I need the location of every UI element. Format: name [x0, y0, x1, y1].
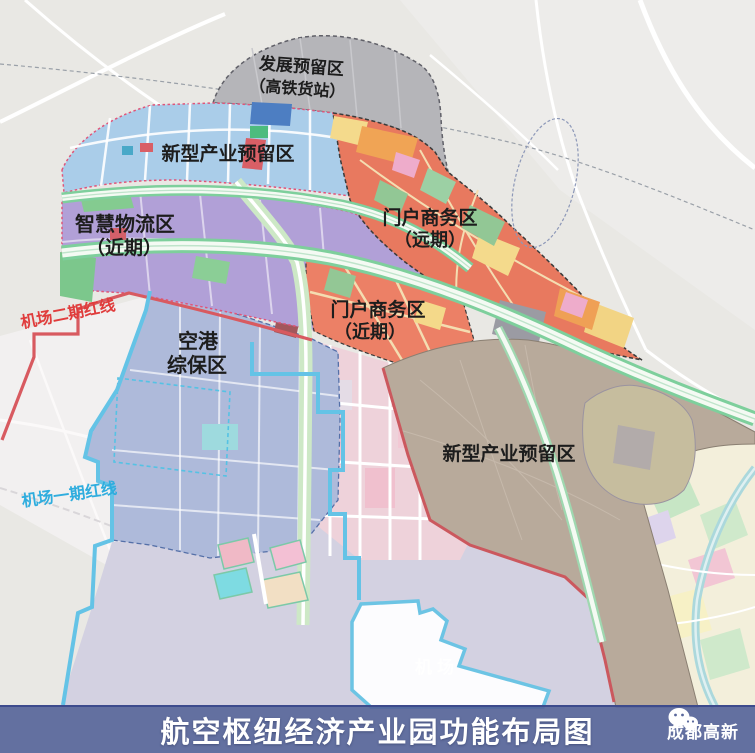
label-gateway-near-sub: （近期） [334, 321, 406, 342]
airport-watermark: 机场 [415, 657, 459, 677]
label-airport-bonded: 空港 [178, 329, 219, 353]
label-smart-logistics: 智慧物流区 [75, 212, 175, 236]
planning-map: 机场 发展预留区 （高铁货站） 新型产业预留区 智慧物流区 （近期） 门户商务区… [0, 0, 755, 753]
label-new-industry-south: 新型产业预留区 [442, 442, 575, 465]
banner: 航空枢纽经济产业园功能布局图 成都高新 [0, 705, 755, 753]
label-airport-bonded-sub: 综保区 [167, 353, 227, 377]
banner-title: 航空枢纽经济产业园功能布局图 [160, 709, 594, 751]
label-new-industry-north: 新型产业预留区 [161, 142, 294, 165]
label-gateway-far-sub: （远期） [394, 230, 466, 250]
label-smart-logistics-sub: （近期） [86, 236, 162, 259]
wechat-icon [667, 707, 699, 735]
brand-block: 成都高新 [667, 707, 739, 753]
label-gateway-far: 门户商务区 [382, 206, 477, 229]
label-gateway-near: 门户商务区 [330, 298, 425, 321]
screenshot-root: 机场 发展预留区 （高铁货站） 新型产业预留区 智慧物流区 （近期） 门户商务区… [0, 0, 755, 753]
